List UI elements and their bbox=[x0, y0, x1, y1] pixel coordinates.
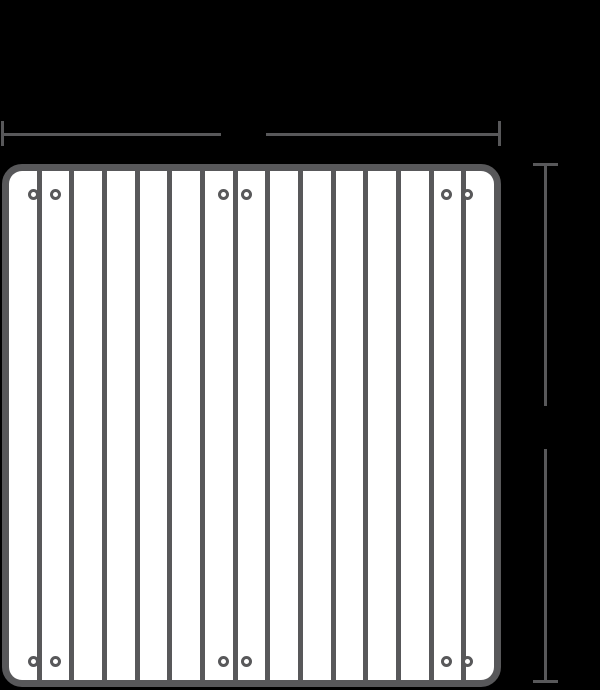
panel-slat bbox=[172, 171, 200, 680]
width-dimension-line-right-segment bbox=[266, 133, 501, 136]
panel-slat bbox=[238, 171, 266, 680]
width-dimension-line-left-segment bbox=[2, 133, 221, 136]
height-dimension-line-bottom-segment bbox=[544, 449, 547, 683]
screw-head-icon bbox=[218, 189, 229, 200]
screw-head-icon bbox=[50, 189, 61, 200]
panel-slat bbox=[205, 171, 233, 680]
width-dimension-right-tick bbox=[498, 121, 501, 146]
screw-head-icon bbox=[28, 656, 39, 667]
panel-slat bbox=[336, 171, 364, 680]
height-dimension-line-top-segment bbox=[544, 164, 547, 406]
panel-slat bbox=[9, 171, 37, 680]
width-dimension-left-tick bbox=[1, 121, 4, 146]
panel-slat bbox=[401, 171, 429, 680]
panel-slat bbox=[466, 171, 494, 680]
panel-slat bbox=[140, 171, 168, 680]
panel-slat bbox=[74, 171, 102, 680]
height-dimension-top-tick bbox=[533, 163, 558, 166]
diagram-stage bbox=[0, 0, 600, 690]
height-dimension-bottom-tick bbox=[533, 680, 558, 683]
panel-slat bbox=[303, 171, 331, 680]
screw-head-icon bbox=[50, 656, 61, 667]
screw-head-icon bbox=[218, 656, 229, 667]
screw-head-icon bbox=[441, 656, 452, 667]
slatted-panel bbox=[2, 164, 501, 687]
panel-slat bbox=[270, 171, 298, 680]
screw-head-icon bbox=[462, 189, 473, 200]
panel-slat bbox=[368, 171, 396, 680]
screw-head-icon bbox=[241, 656, 252, 667]
panel-slat bbox=[42, 171, 70, 680]
height-dimension-label bbox=[523, 407, 568, 449]
panel-slat bbox=[434, 171, 462, 680]
screw-head-icon bbox=[241, 189, 252, 200]
screw-head-icon bbox=[28, 189, 39, 200]
screw-head-icon bbox=[462, 656, 473, 667]
screw-head-icon bbox=[441, 189, 452, 200]
panel-slat bbox=[107, 171, 135, 680]
